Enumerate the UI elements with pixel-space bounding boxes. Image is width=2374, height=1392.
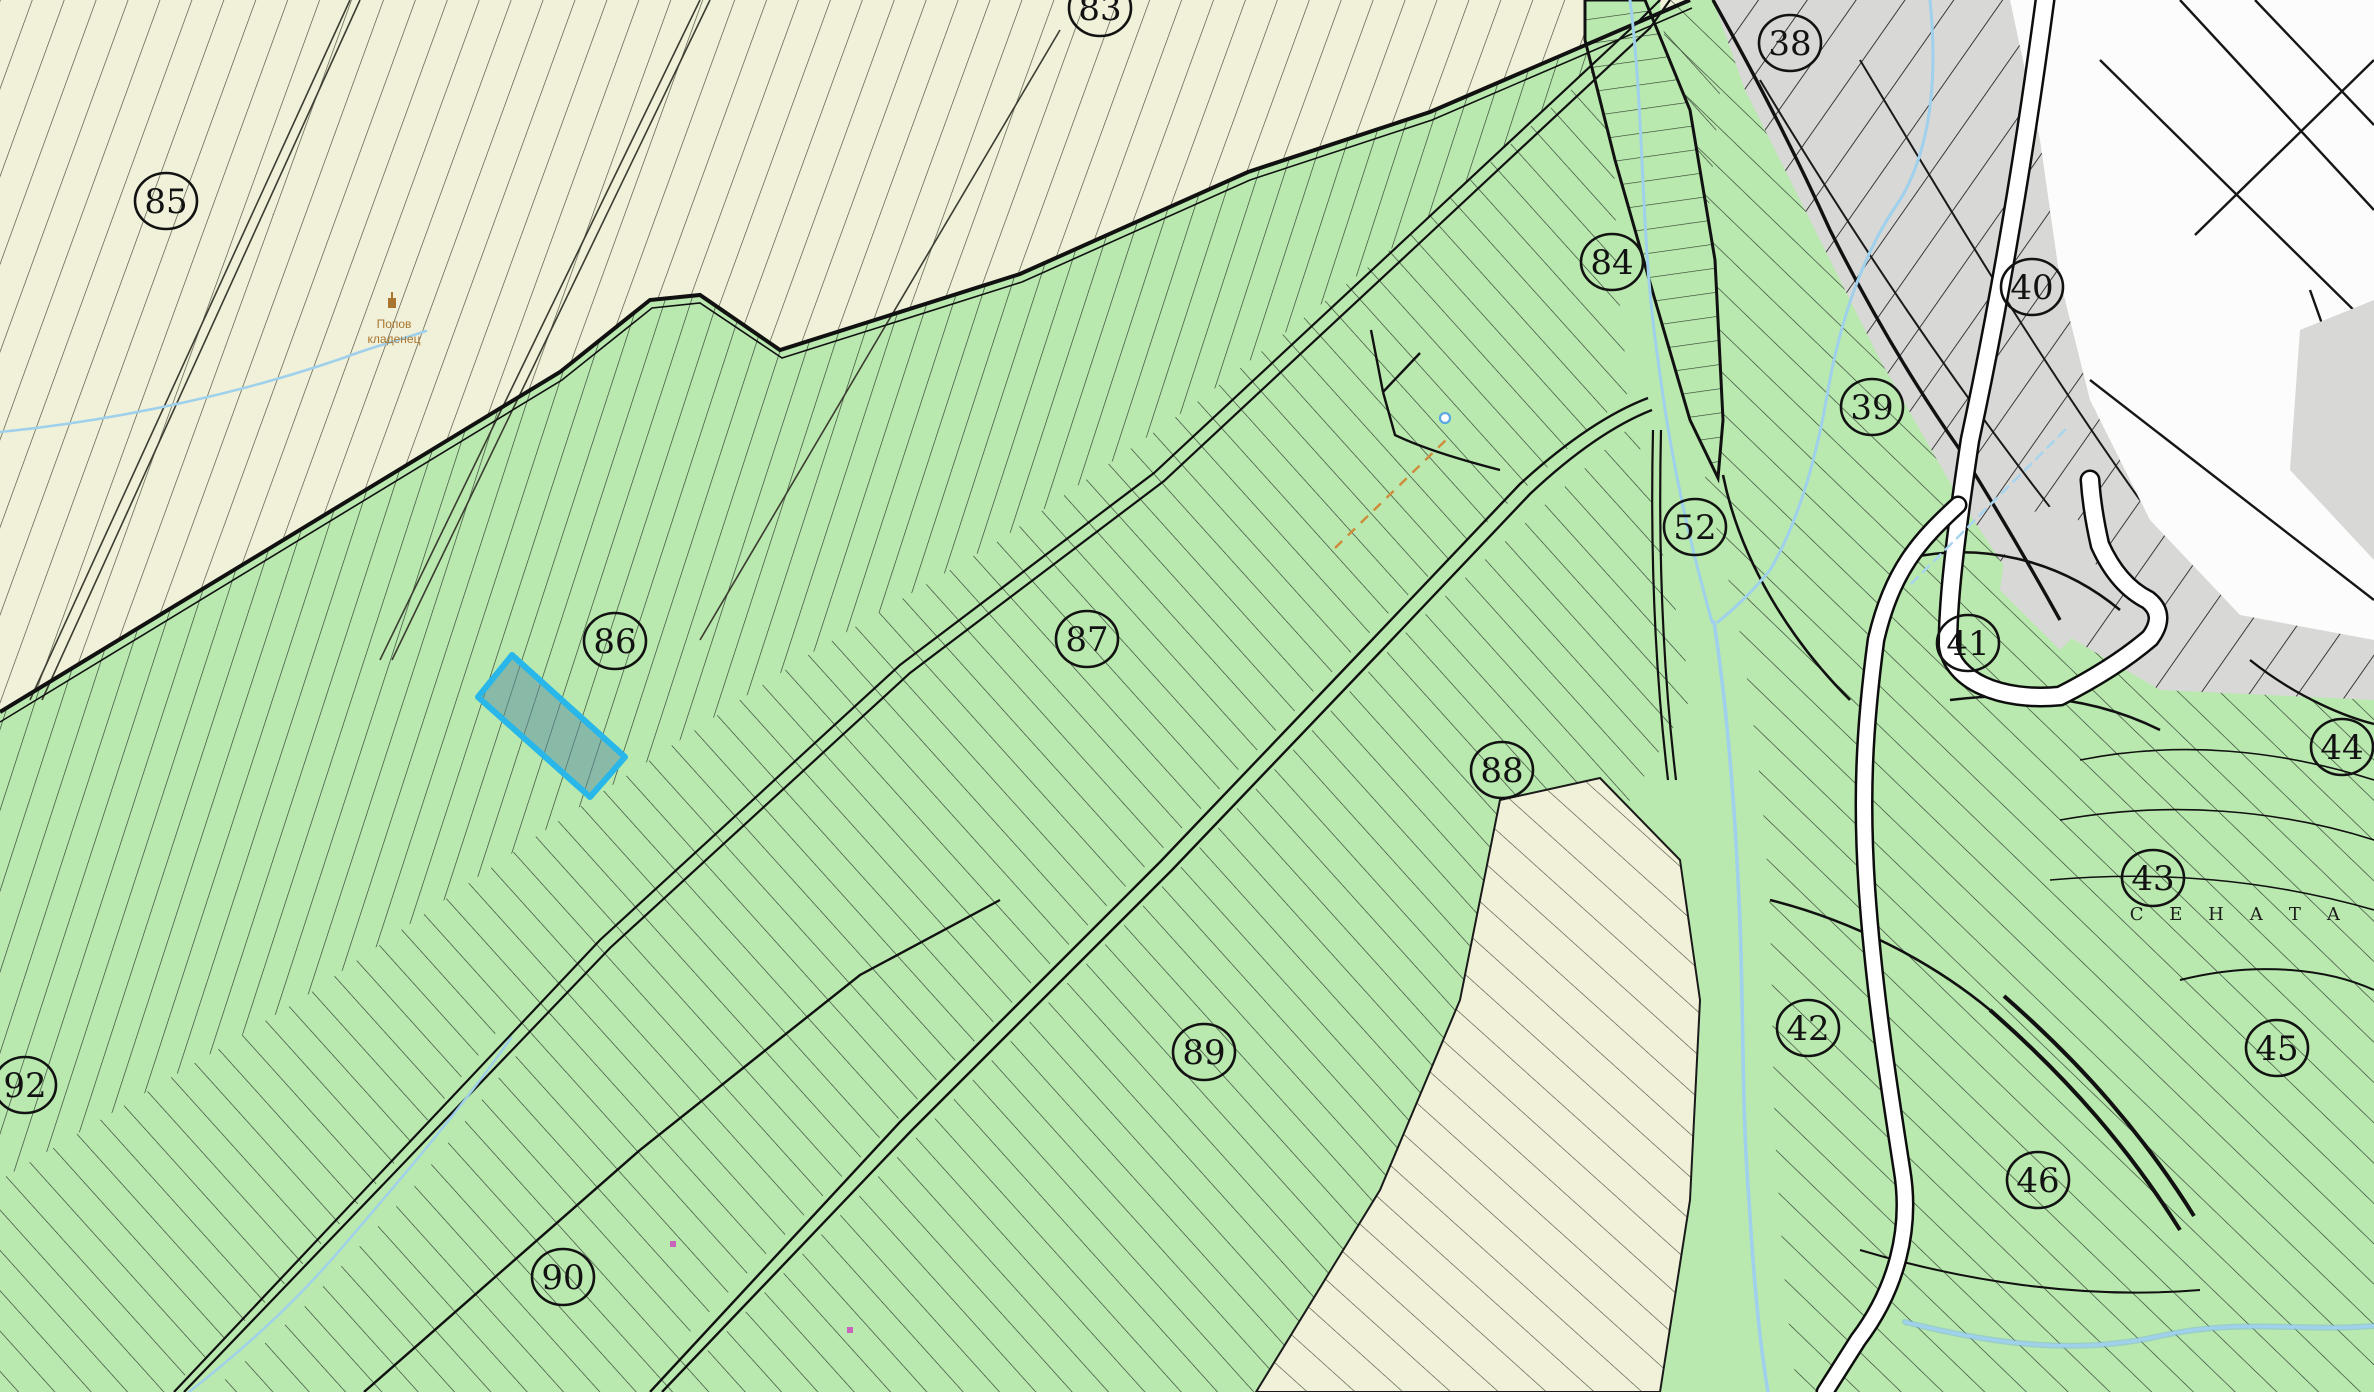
parcel-number-text: 88 bbox=[1480, 751, 1523, 791]
parcel-number-text: 41 bbox=[1946, 624, 1989, 664]
parcel-number-text: 92 bbox=[3, 1066, 46, 1106]
parcel-number-text: 84 bbox=[1590, 243, 1633, 283]
parcel-number-text: 89 bbox=[1182, 1033, 1225, 1073]
cadastral-map-canvas: 83858687888990928438394041424344454652 С… bbox=[0, 0, 2374, 1392]
well-label-line2: кладенец bbox=[368, 332, 421, 346]
well-icon bbox=[388, 298, 396, 308]
parcel-number-text: 86 bbox=[593, 622, 636, 662]
parcel-number-text: 90 bbox=[541, 1258, 584, 1298]
parcel-number-text: 45 bbox=[2255, 1029, 2298, 1069]
parcel-number-text: 39 bbox=[1850, 388, 1893, 428]
parcel-number-text: 38 bbox=[1768, 24, 1811, 64]
parcel-number-text: 85 bbox=[144, 182, 187, 222]
parcel-number-text: 83 bbox=[1078, 0, 1121, 29]
parcel-number-text: 87 bbox=[1065, 620, 1108, 660]
parcel-number-text: 42 bbox=[1786, 1009, 1829, 1049]
well-label-line1: Попов bbox=[377, 317, 412, 331]
parcel-number-text: 43 bbox=[2131, 859, 2174, 899]
locality-label-senata: С Е Н А Т А bbox=[2130, 904, 2351, 925]
parcel-number-text: 40 bbox=[2010, 268, 2053, 308]
parcel-number-text: 52 bbox=[1673, 508, 1716, 548]
map-viewport[interactable]: 83858687888990928438394041424344454652 С… bbox=[0, 0, 2374, 1392]
parcel-number-text: 44 bbox=[2320, 728, 2363, 768]
spring-marker-icon bbox=[1440, 413, 1450, 423]
parcel-number-text: 46 bbox=[2016, 1161, 2059, 1201]
